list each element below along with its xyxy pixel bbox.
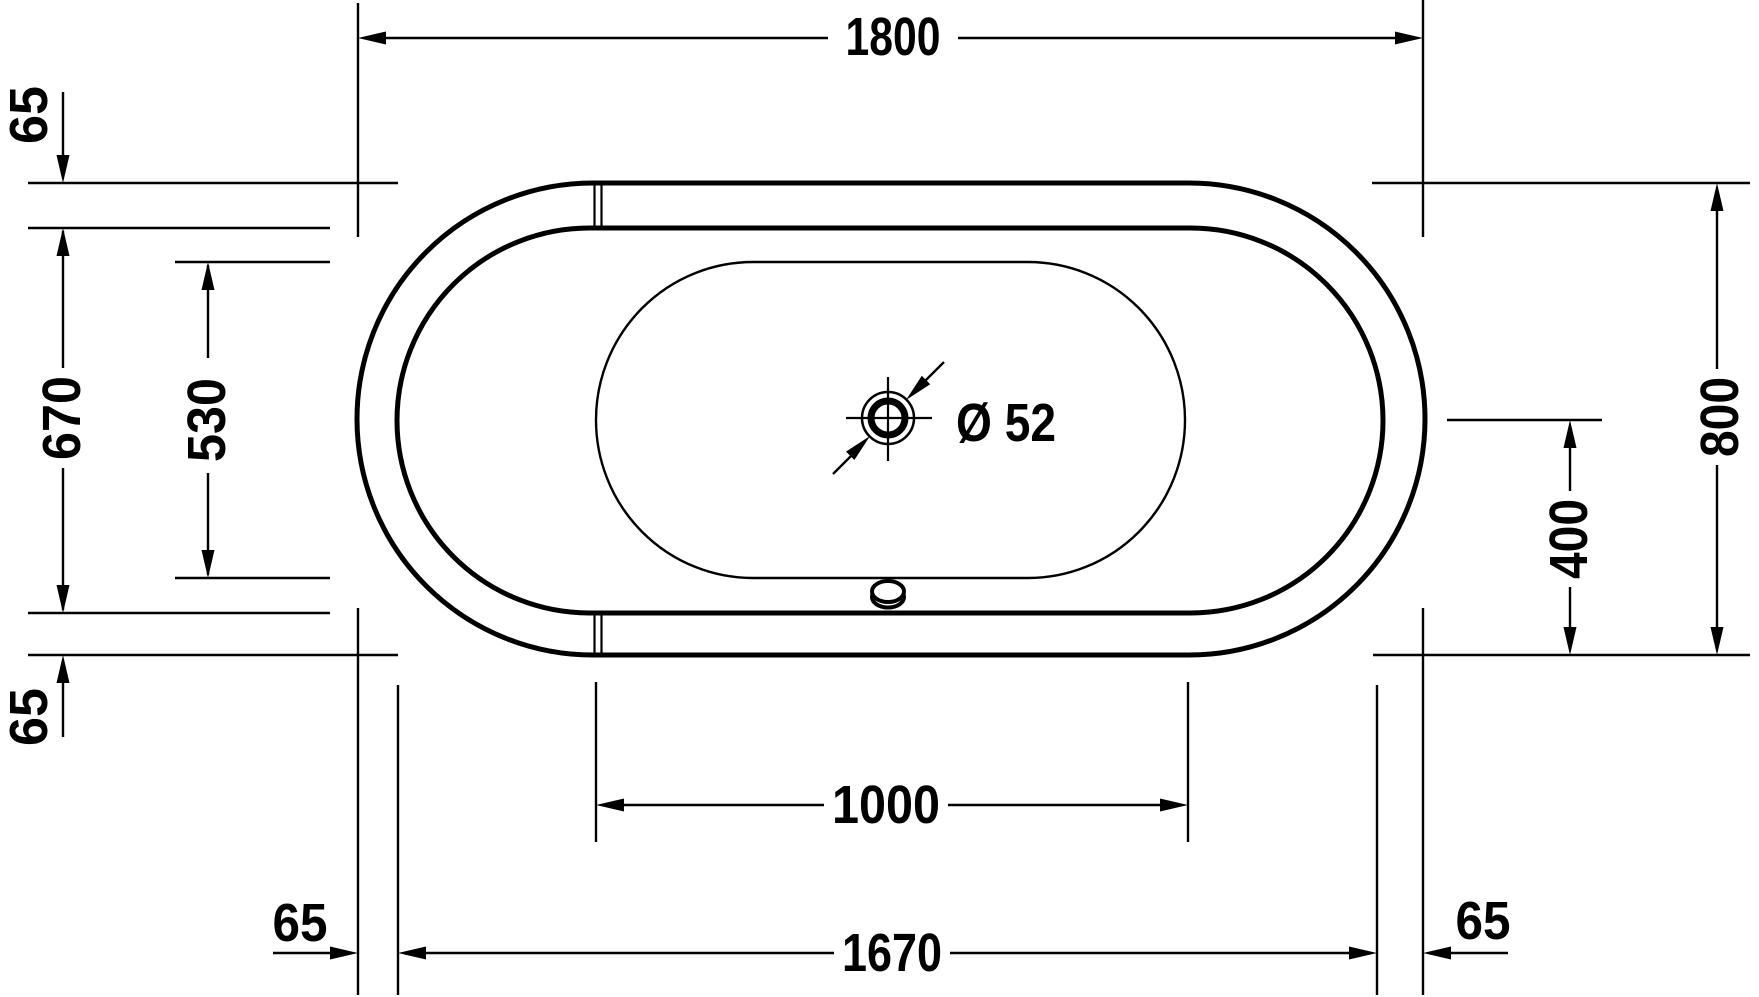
drain-diameter-label: Ø 52 [956,393,1056,453]
dimension-rim-right-horizontal: 65 [1423,891,1511,960]
dimension-label-65-bottom-left: 65 [273,893,328,953]
dimension-rim-bottom: 65 [0,655,70,746]
dimension-label-400: 400 [1539,499,1599,579]
dimension-label-530: 530 [177,378,237,462]
dimension-rim-top: 65 [0,86,70,183]
dimension-label-670: 670 [32,376,92,460]
dimension-rim-left-horizontal: 65 [273,893,359,960]
bathtub-technical-drawing: Ø 52 1800 65 670 530 [0,0,1759,997]
dimension-drain-offset: 400 [1539,420,1599,655]
dimension-inner-width: 670 [32,228,92,613]
dimension-basin-width: 530 [177,262,237,578]
overflow-fitting [872,581,904,608]
dimension-label-65-bottom-right: 65 [1456,891,1511,951]
dimension-label-1800: 1800 [846,7,941,67]
dimension-label-65-top: 65 [0,86,59,144]
dimension-inner-length: 1670 [398,923,1377,983]
dimension-label-65-bottom: 65 [0,688,59,746]
dimension-overall-width: 800 [1690,183,1750,655]
drawing-canvas: Ø 52 1800 65 670 530 [0,0,1759,997]
dimension-label-1670: 1670 [842,923,942,983]
dimension-basin-length: 1000 [596,775,1188,835]
dimension-label-1000: 1000 [832,775,940,835]
tub-rim-inner-edge [397,228,1383,613]
dimension-label-800: 800 [1690,377,1750,457]
